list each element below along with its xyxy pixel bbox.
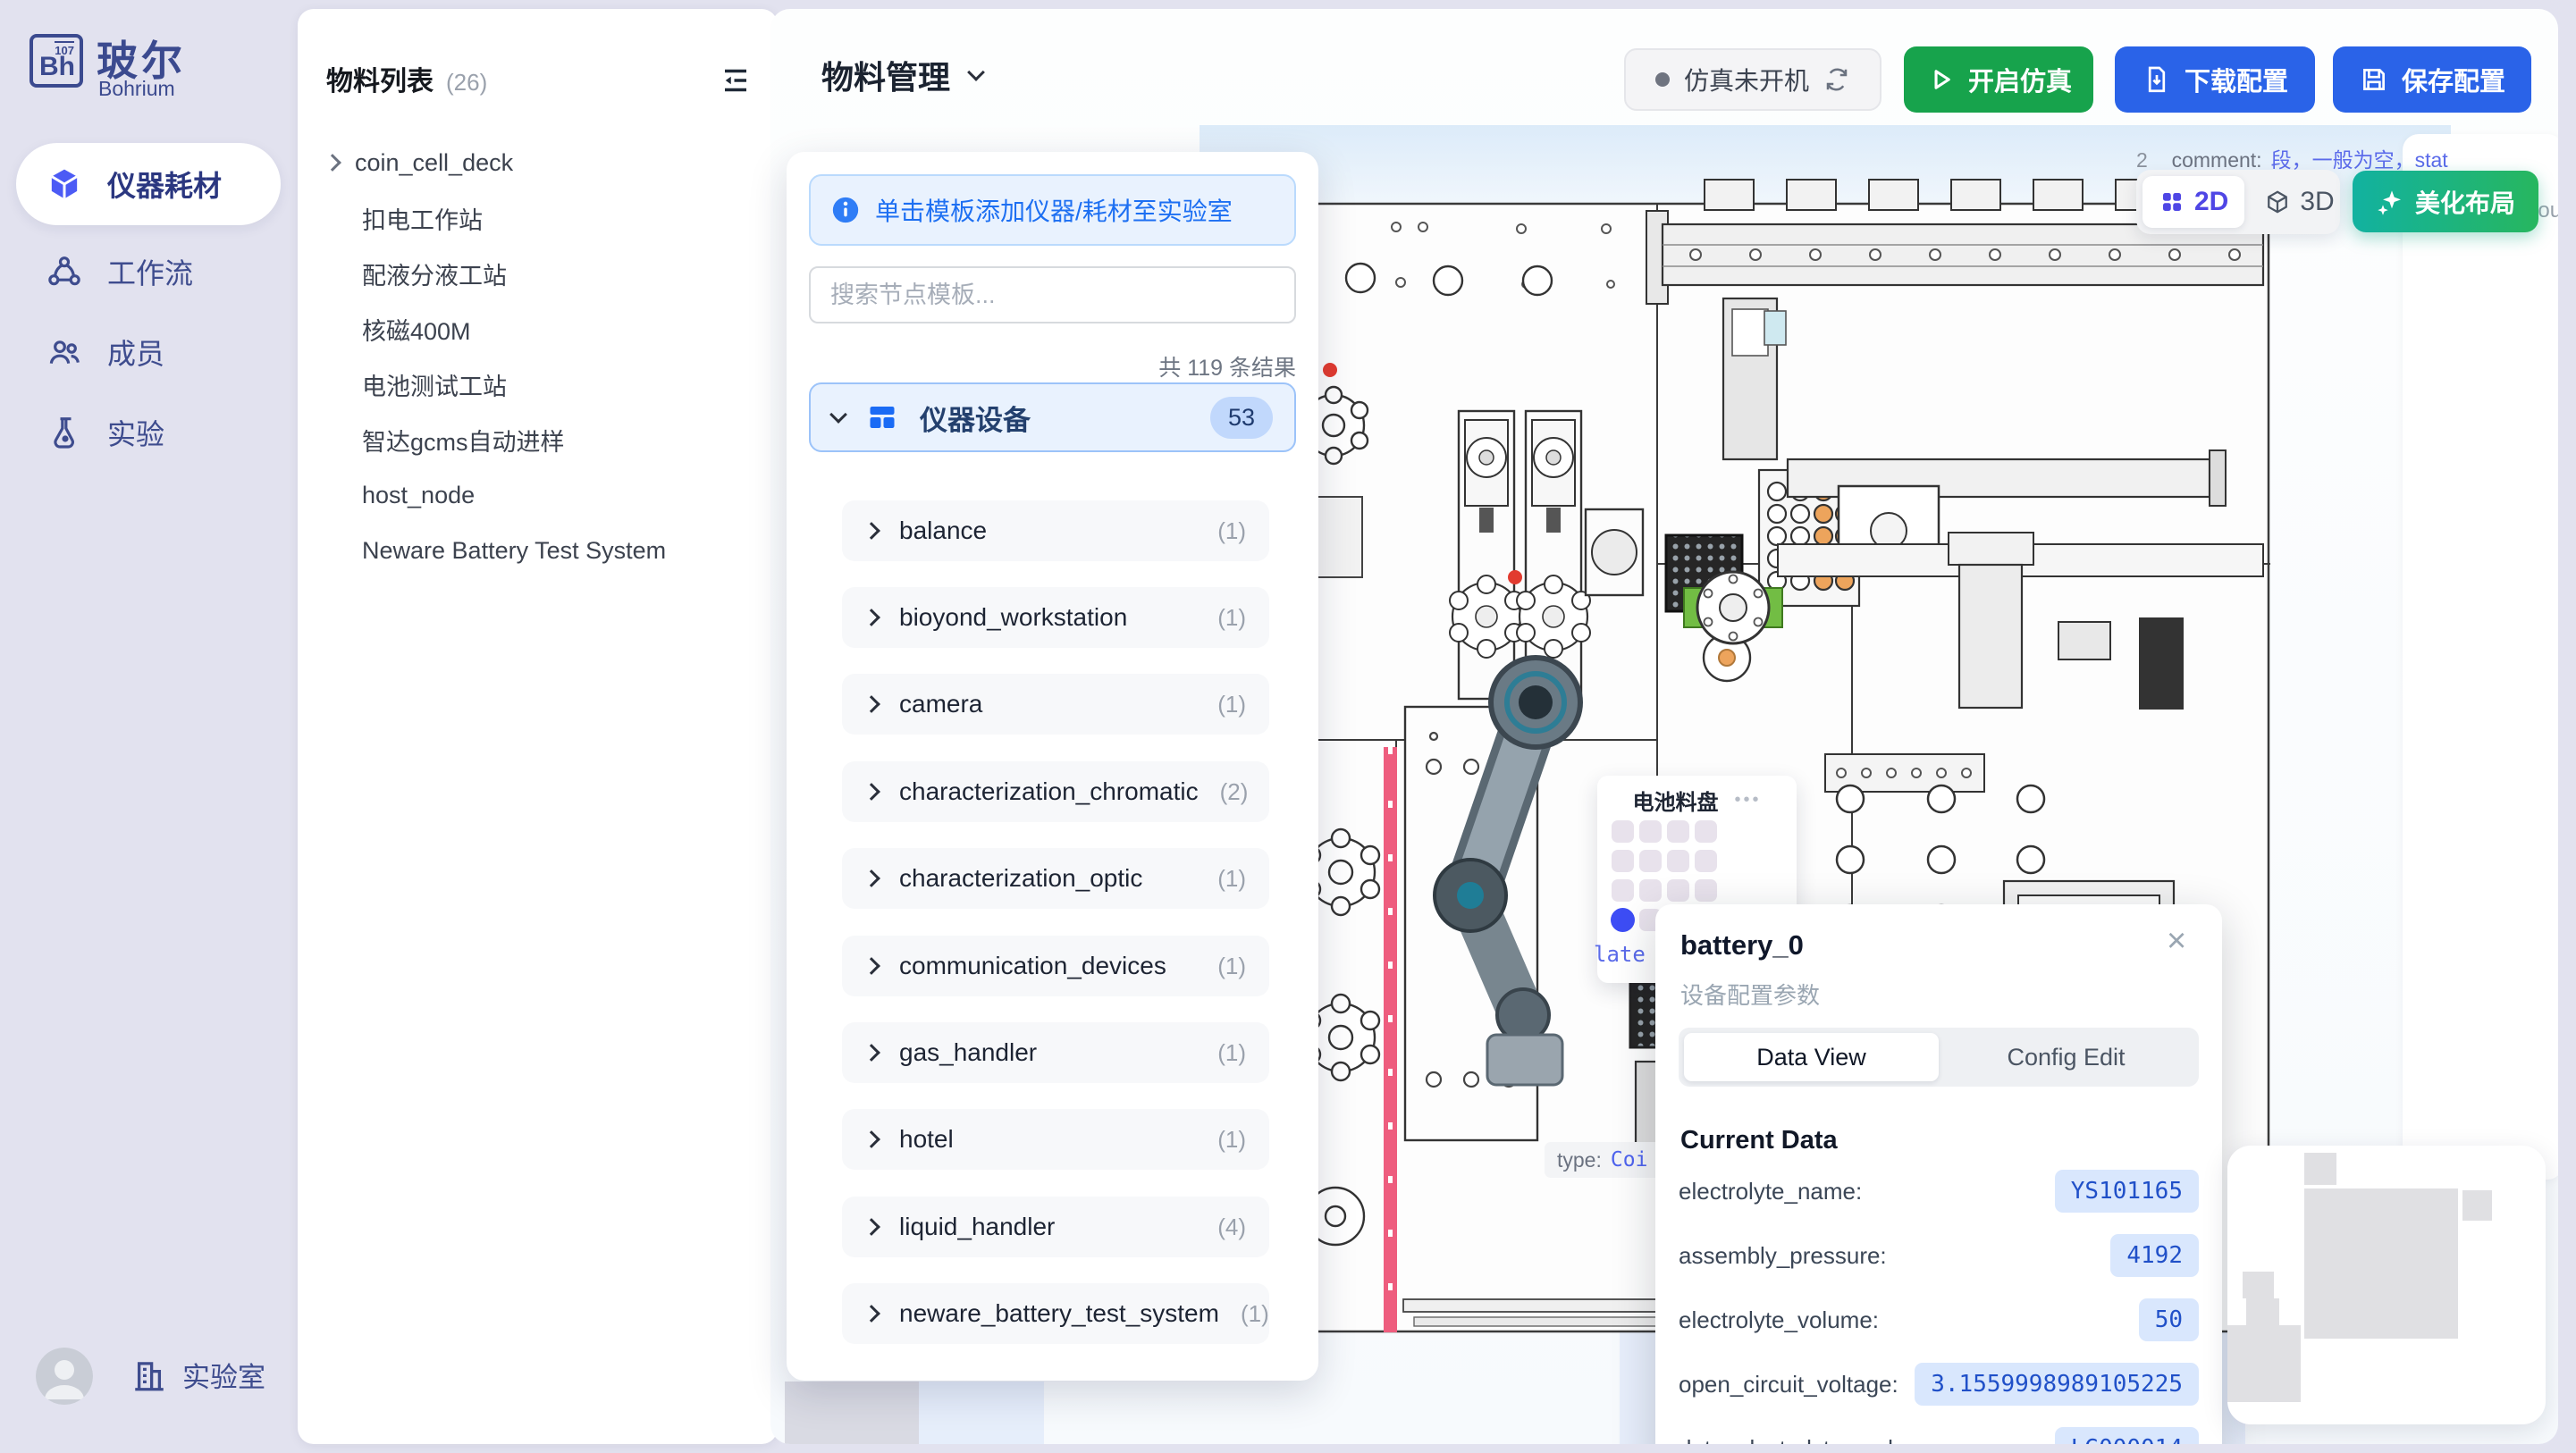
refresh-icon[interactable]	[1823, 66, 1850, 93]
tray-slot[interactable]	[1639, 820, 1662, 843]
chevron-right-icon	[863, 783, 880, 801]
field-value: 4192	[2110, 1234, 2199, 1277]
simulation-status-pill[interactable]: 仿真未开机	[1624, 48, 1881, 111]
tray-slot[interactable]	[1667, 850, 1689, 872]
sidebar-item-experiments[interactable]: 实验	[16, 400, 281, 465]
sidebar-item-label: 仪器耗材	[107, 164, 222, 205]
materials-title: 物料列表(26)	[326, 59, 487, 98]
layout-grid-icon	[866, 401, 898, 433]
tray-slot[interactable]	[1639, 850, 1662, 872]
tray-slot[interactable]	[1695, 820, 1717, 843]
canvas-fragment-blue	[919, 1382, 1044, 1444]
chevron-down-icon	[967, 63, 985, 81]
collapse-list-icon[interactable]	[720, 64, 752, 97]
template-item-bioyond-workstation[interactable]: bioyond_workstation (1)	[842, 587, 1269, 648]
page-title-label: 物料管理	[821, 52, 950, 98]
template-item-camera[interactable]: camera (1)	[842, 674, 1269, 735]
template-item-gas-handler[interactable]: gas_handler (1)	[842, 1022, 1269, 1083]
field-row: open_circuit_voltage: 3.1559998989105225	[1679, 1362, 2199, 1407]
template-item-characterization-optic[interactable]: characterization_optic (1)	[842, 848, 1269, 909]
material-label: 电池测试工站	[362, 367, 507, 402]
material-label: coin_cell_deck	[355, 149, 513, 177]
chevron-right-icon	[863, 522, 880, 540]
start-label: 开启仿真	[1968, 61, 2072, 98]
tray-slot[interactable]	[1612, 820, 1634, 843]
tray-slot[interactable]	[1695, 850, 1717, 872]
close-icon[interactable]: ×	[2167, 924, 2186, 958]
tray-slot[interactable]	[1667, 820, 1689, 843]
plate-text-fragment: late	[1594, 942, 1646, 967]
materials-panel: 物料列表(26) coin_cell_deck 扣电工作站 配液分液工站 核磁4…	[298, 9, 778, 1444]
chevron-right-icon	[863, 609, 880, 626]
toggle-2d[interactable]: 2D	[2142, 176, 2244, 228]
sidebar-item-label: 成员	[107, 332, 164, 373]
popup-subtitle: 设备配置参数	[1680, 978, 1820, 1011]
bohrium-logo: 107 Bh	[29, 34, 83, 88]
field-label: data_electrolyte_code:	[1679, 1435, 1913, 1445]
chevron-right-icon	[863, 1305, 880, 1323]
play-icon	[1925, 64, 1956, 95]
template-hint-banner: 单击模板添加仪器/耗材至实验室	[809, 174, 1296, 246]
start-simulation-button[interactable]: 开启仿真	[1904, 46, 2093, 113]
toggle-3d[interactable]: 3D	[2248, 176, 2350, 228]
chevron-right-icon	[863, 1218, 880, 1236]
category-label: 仪器设备	[920, 398, 1189, 438]
material-label: host_node	[362, 482, 475, 509]
material-item[interactable]: host_node	[326, 472, 749, 518]
avatar[interactable]	[36, 1348, 93, 1405]
chevron-right-icon	[863, 695, 880, 713]
tray-slot[interactable]	[1695, 879, 1717, 902]
material-label: Neware Battery Test System	[362, 537, 666, 565]
field-value: 50	[2139, 1298, 2199, 1341]
node-template-panel: 单击模板添加仪器/耗材至实验室 共 119 条结果 仪器设备 53 balanc…	[787, 152, 1318, 1381]
tray-slot[interactable]	[1639, 879, 1662, 902]
chevron-down-icon	[829, 406, 847, 424]
field-value: YS101165	[2055, 1170, 2199, 1213]
sidebar-item-workflow[interactable]: 工作流	[16, 239, 281, 304]
field-row: electrolyte_name: YS101165	[1679, 1169, 2199, 1214]
template-item-liquid-handler[interactable]: liquid_handler (4)	[842, 1197, 1269, 1257]
experiment-icon	[46, 415, 82, 450]
material-item-expandable[interactable]: coin_cell_deck	[326, 139, 749, 186]
popup-title: battery_0	[1680, 929, 1804, 962]
search-input[interactable]	[809, 266, 1296, 323]
toggle-2d-label: 2D	[2194, 187, 2228, 217]
material-label: 扣电工作站	[362, 201, 483, 236]
field-label: assembly_pressure:	[1679, 1242, 1887, 1270]
logo-symbol: Bh	[39, 52, 75, 82]
right-edge-panel	[2403, 134, 2558, 1180]
save-config-button[interactable]: 保存配置	[2333, 46, 2531, 113]
page-title[interactable]: 物料管理	[821, 52, 982, 98]
field-value: LG000014	[2055, 1427, 2199, 1444]
minimap[interactable]	[2227, 1146, 2546, 1424]
download-file-icon	[2142, 64, 2172, 95]
grid-dots-icon	[2159, 189, 2185, 215]
sidebar-item-label: 工作流	[107, 251, 193, 292]
field-label: electrolyte_name:	[1679, 1178, 1862, 1205]
toggle-3d-label: 3D	[2300, 187, 2334, 217]
chevron-right-icon	[863, 869, 880, 887]
template-item-characterization-chromatic[interactable]: characterization_chromatic (2)	[842, 761, 1269, 822]
material-item[interactable]: 智达gcms自动进样	[326, 416, 749, 463]
template-item-balance[interactable]: balance (1)	[842, 500, 1269, 561]
chevron-right-icon	[324, 154, 341, 172]
battery-0-node[interactable]	[1611, 908, 1635, 932]
material-label: 智达gcms自动进样	[362, 423, 565, 458]
download-label: 下载配置	[2185, 61, 2288, 98]
material-item[interactable]: 配液分液工站	[326, 250, 749, 297]
beautify-label: 美化布局	[2415, 184, 2515, 220]
material-label: 配液分液工站	[362, 256, 507, 291]
members-icon	[46, 334, 82, 370]
tab-config-edit[interactable]: Config Edit	[1939, 1033, 2193, 1081]
building-icon	[130, 1356, 168, 1394]
popup-tabs: Data View Config Edit	[1679, 1028, 2199, 1087]
download-config-button[interactable]: 下载配置	[2115, 46, 2315, 113]
brand-subtitle: Bohrium	[98, 77, 175, 101]
canvas-fragment-gray	[785, 1382, 919, 1444]
current-data-heading: Current Data	[1680, 1126, 1838, 1155]
tray-slot[interactable]	[1667, 879, 1689, 902]
tray-slot[interactable]	[1612, 879, 1634, 902]
cube-icon	[46, 166, 82, 202]
template-item-hotel[interactable]: hotel (1)	[842, 1109, 1269, 1170]
status-dot-icon	[1655, 72, 1670, 87]
material-label: 核磁400M	[362, 312, 471, 347]
field-label: open_circuit_voltage:	[1679, 1371, 1898, 1398]
lab-label: 实验室	[182, 1355, 265, 1395]
tab-data-view[interactable]: Data View	[1684, 1033, 1939, 1081]
chevron-right-icon	[863, 1130, 880, 1148]
tray-title: 电池料盘	[1632, 785, 1718, 816]
workflow-icon	[46, 254, 82, 290]
material-item[interactable]: 核磁400M	[326, 306, 749, 352]
field-row: data_electrolyte_code: LG000014	[1679, 1426, 2199, 1444]
field-row: electrolyte_volume: 50	[1679, 1298, 2199, 1342]
template-item-communication-devices[interactable]: communication_devices (1)	[842, 936, 1269, 996]
material-item[interactable]: 扣电工作站	[326, 195, 749, 241]
materials-count: (26)	[446, 69, 487, 96]
device-config-popup: battery_0 × 设备配置参数 Data View Config Edit…	[1655, 904, 2222, 1444]
field-label: electrolyte_volume:	[1679, 1306, 1879, 1334]
chevron-right-icon	[863, 1044, 880, 1062]
info-icon	[830, 195, 861, 225]
sidebar-item-members[interactable]: 成员	[16, 320, 281, 384]
chevron-right-icon	[863, 957, 880, 975]
field-value: 3.1559998989105225	[1915, 1363, 2199, 1406]
template-item-neware-battery-test-system[interactable]: neware_battery_test_system (1)	[842, 1283, 1269, 1344]
sidebar-item-label: 实验	[107, 412, 164, 453]
more-options-icon[interactable]: •••	[1734, 790, 1761, 810]
material-item[interactable]: Neware Battery Test System	[326, 527, 749, 574]
results-count: 共 119 条结果	[809, 350, 1296, 382]
tray-slot[interactable]	[1612, 850, 1634, 872]
sparkles-icon	[2376, 188, 2404, 216]
save-label: 保存配置	[2402, 61, 2505, 98]
cube-outline-icon	[2264, 189, 2291, 215]
sidebar: 107 Bh 玻尔 Bohrium 仪器耗材 工作流 成员 实验 实验室	[0, 0, 295, 1453]
lab-switcher[interactable]: 实验室	[130, 1355, 265, 1395]
status-label: 仿真未开机	[1684, 62, 1809, 97]
sidebar-item-instruments[interactable]: 仪器耗材	[16, 143, 281, 225]
category-instruments[interactable]: 仪器设备 53	[809, 382, 1296, 452]
canvas-json-comment: 2_comment:段，一般为空，stat	[2136, 143, 2448, 173]
view-mode-toggle: 2D 3D	[2136, 170, 2340, 234]
material-item[interactable]: 电池测试工站	[326, 361, 749, 407]
category-count-badge: 53	[1210, 397, 1273, 439]
field-row: assembly_pressure: 4192	[1679, 1233, 2199, 1278]
beautify-layout-button[interactable]: 美化布局	[2353, 171, 2538, 232]
save-icon	[2359, 64, 2389, 95]
banner-text: 单击模板添加仪器/耗材至实验室	[875, 192, 1233, 228]
